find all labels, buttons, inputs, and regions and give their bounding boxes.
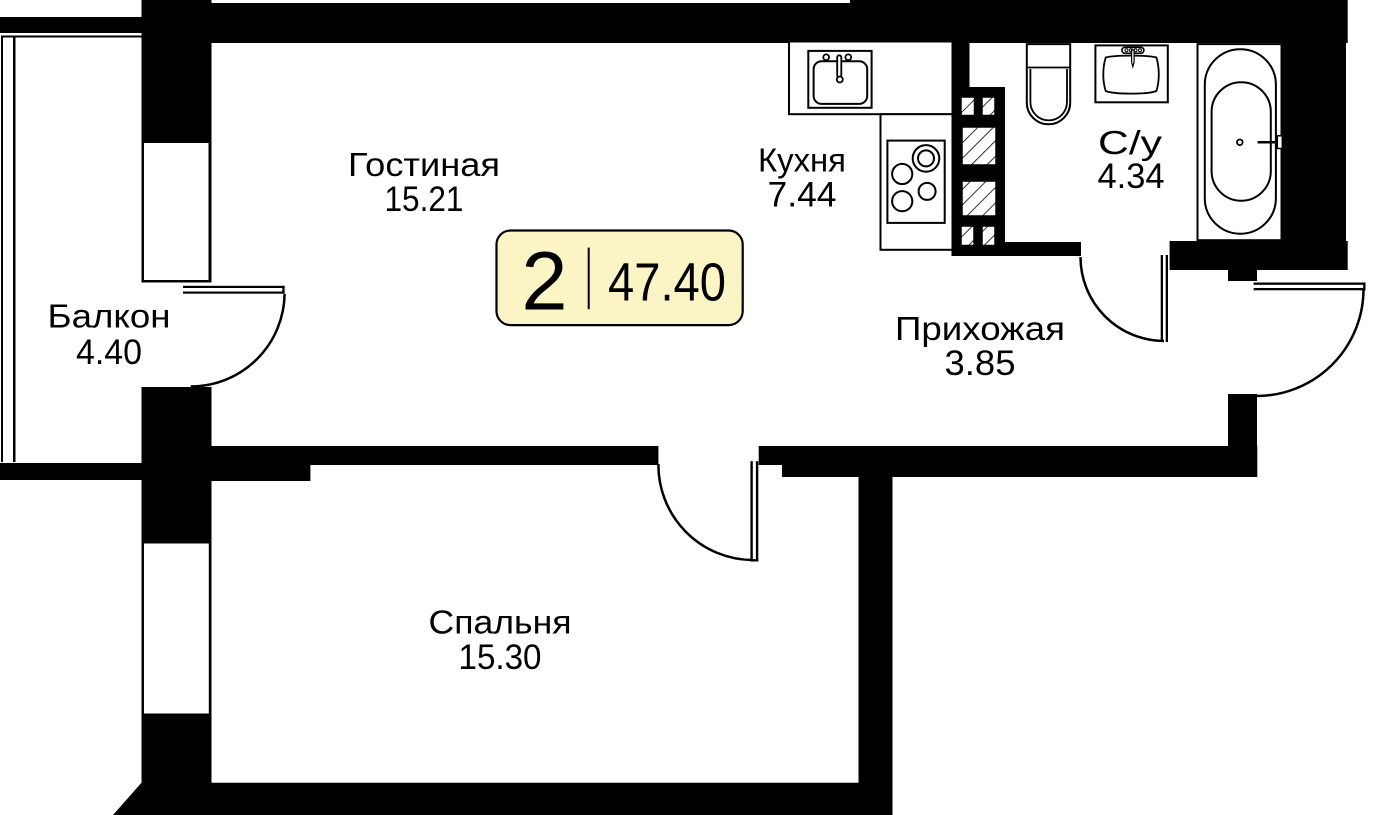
svg-text:Гостиная: Гостиная [348, 146, 500, 183]
svg-text:Балкон: Балкон [48, 298, 171, 335]
svg-text:3.85: 3.85 [945, 344, 1016, 383]
svg-text:С/у: С/у [1098, 124, 1163, 161]
svg-text:15.30: 15.30 [459, 638, 542, 677]
svg-text:15.21: 15.21 [385, 180, 464, 219]
svg-text:4.34: 4.34 [1098, 157, 1165, 196]
svg-text:4.40: 4.40 [76, 333, 142, 372]
svg-text:2: 2 [521, 235, 567, 328]
svg-text:Спальня: Спальня [429, 604, 572, 641]
svg-text:Прихожая: Прихожая [895, 310, 1065, 347]
svg-text:Кухня: Кухня [758, 142, 846, 179]
svg-text:7.44: 7.44 [768, 176, 837, 215]
svg-text:47.40: 47.40 [608, 253, 726, 313]
